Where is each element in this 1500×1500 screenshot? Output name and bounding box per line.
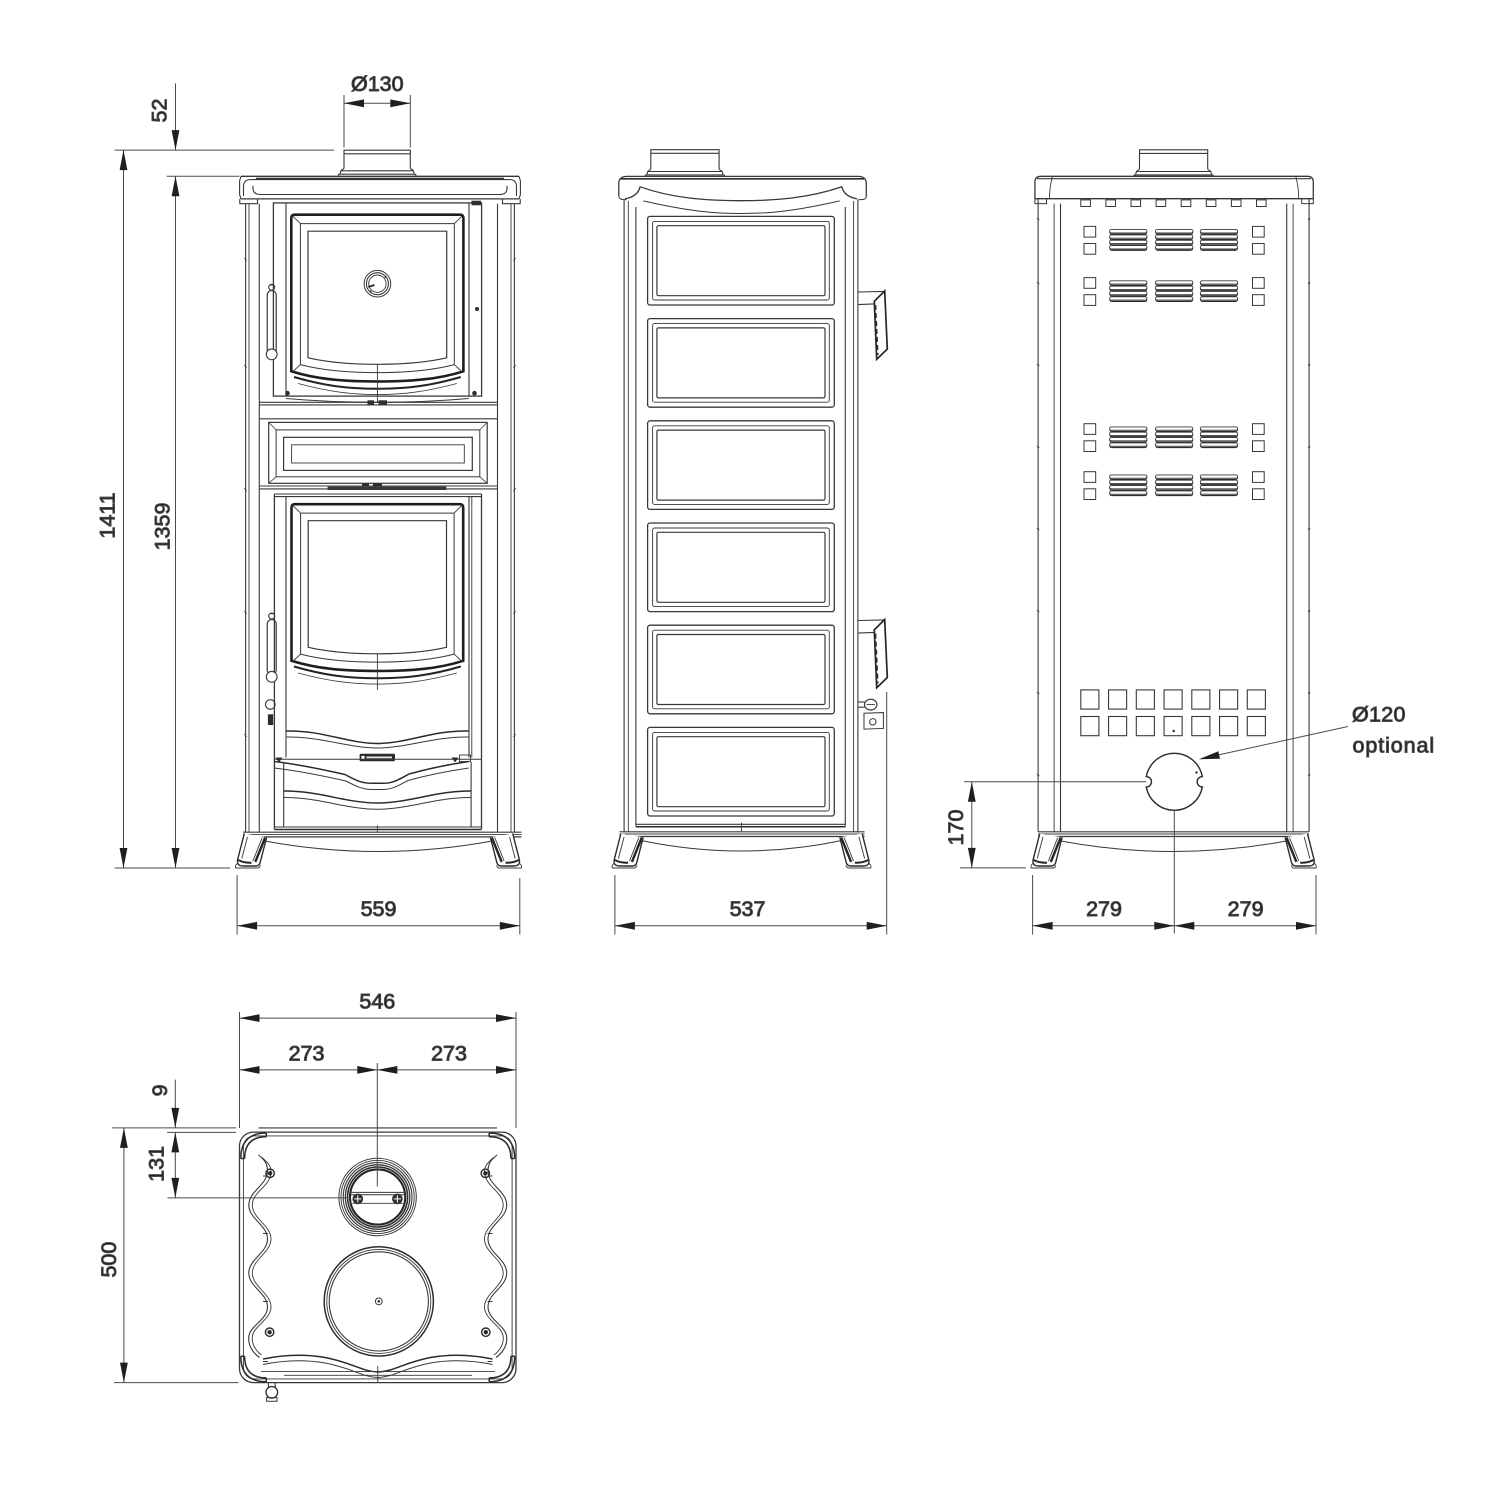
svg-text:Ø120: Ø120: [1352, 703, 1406, 727]
svg-text:537: 537: [730, 897, 766, 921]
svg-text:Ø130: Ø130: [351, 72, 404, 96]
svg-text:131: 131: [144, 1146, 168, 1182]
svg-text:170: 170: [944, 810, 968, 846]
svg-text:273: 273: [289, 1042, 325, 1066]
svg-text:273: 273: [431, 1042, 467, 1066]
svg-text:279: 279: [1086, 897, 1122, 921]
svg-text:546: 546: [359, 990, 395, 1014]
svg-text:52: 52: [147, 99, 171, 123]
svg-text:9: 9: [148, 1084, 172, 1096]
svg-text:1359: 1359: [150, 503, 174, 551]
svg-text:1411: 1411: [95, 492, 119, 538]
svg-text:279: 279: [1228, 897, 1264, 921]
svg-text:500: 500: [97, 1242, 121, 1278]
svg-text:optional: optional: [1353, 734, 1436, 758]
svg-text:559: 559: [361, 897, 397, 921]
